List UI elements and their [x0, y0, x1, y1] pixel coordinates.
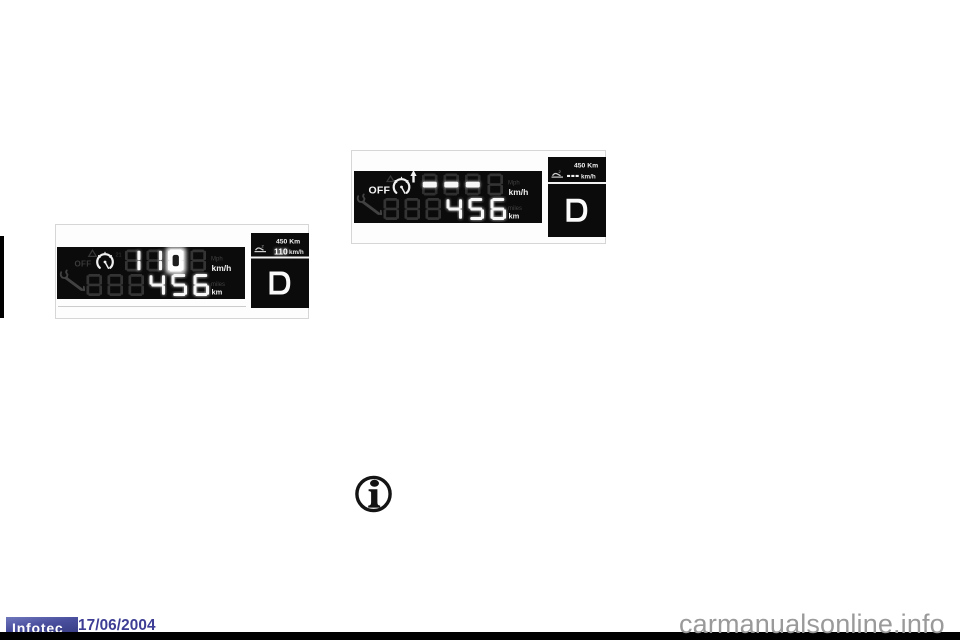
svg-text:Mph: Mph — [508, 181, 520, 187]
svg-text:km/h: km/h — [581, 174, 596, 181]
svg-text:450 Km: 450 Km — [276, 239, 300, 246]
svg-text:OFF: OFF — [75, 260, 92, 269]
svg-text:110: 110 — [274, 247, 288, 257]
svg-text:km: km — [212, 288, 223, 297]
svg-text:km/h: km/h — [509, 187, 529, 197]
svg-text:km/h: km/h — [289, 249, 304, 256]
svg-text:Mph: Mph — [211, 257, 223, 263]
svg-text:450 Km: 450 Km — [574, 163, 598, 170]
svg-text:21: 21 — [116, 253, 122, 259]
svg-text:km/h: km/h — [212, 263, 232, 273]
svg-text:km: km — [509, 212, 520, 221]
svg-text:OFF: OFF — [369, 185, 391, 197]
